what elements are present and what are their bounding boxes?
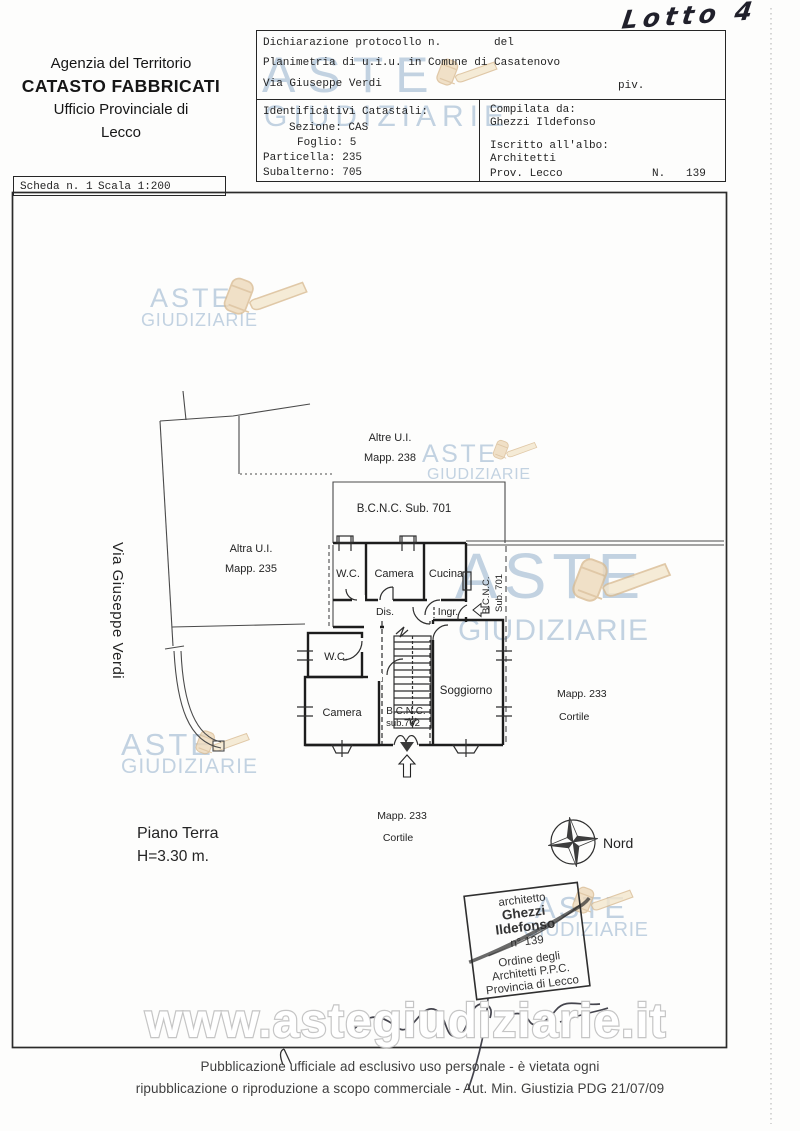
foglio-value: Foglio: 5 [297,137,356,149]
particella-value: Particella: 235 [263,152,362,164]
street-line: Via Giuseppe Verdi [263,78,382,90]
room-label-wc-top: W.C. [336,568,360,580]
label-cortile-right: Cortile [559,711,590,723]
watermark-word2: GIUDIZIARIE [427,466,531,483]
agency-header: Agenzia del Territorio CATASTO FABBRICAT… [16,52,226,144]
room-label-ingr: Ingr. [438,606,458,618]
room-label-wc-lower: W.C. [324,651,348,663]
label-bcnc-702: B.C.N.C. [386,706,425,717]
north-label: Nord [603,835,633,851]
label-bcnc-sub701: B.C.N.C. Sub. 701 [357,503,452,515]
label-floor-height: H=3.30 m. [137,848,209,865]
subalterno-value: Subalterno: 705 [263,167,362,179]
office-city: Lecco [16,121,226,144]
protocol-label: Dichiarazione protocollo n. [263,37,441,49]
office-line: Ufficio Provinciale di [16,98,226,121]
label-mapp-235: Mapp. 235 [225,563,277,575]
watermark-aste-left-upper: ASTE GIUDIZIARIE [141,276,307,330]
scanned-cadastral-document: ASTE GIUDIZIARIE ASTE GIUDIZIARIE ASTE G… [0,0,800,1131]
albo-label: Iscritto all'albo: [490,140,609,152]
num-value: 139 [686,168,706,180]
room-label-camera-lower: Camera [322,707,362,719]
planimetria-line: Planimetria di u.i.u. in Comune di Casat… [263,57,560,69]
compilata-name: Ghezzi Ildefonso [490,117,596,129]
label-altre-ui: Altre U.I. [369,432,412,444]
watermark-word1: ASTE [150,283,233,313]
entrance-arrow [399,755,415,777]
watermark-aste-plan-upper: ASTE GIUDIZIARIE [422,439,537,483]
del-label: del [494,37,514,49]
num-label: N. [652,168,665,180]
label-mapp-233-bottom: Mapp. 233 [377,810,427,822]
scheda-number: Scheda n. 1 [20,181,93,193]
table-row-divider [256,99,726,100]
table-col-divider [479,99,480,182]
room-label-camera-top: Camera [374,568,414,580]
gavel-icon [492,439,537,460]
piv-label: piv. [618,80,644,92]
compilata-label: Compilata da: [490,104,576,116]
room-label-cucina: Cucina [429,568,464,580]
gavel-icon [222,276,306,316]
label-piano-terra: Piano Terra [137,825,219,842]
room-label-dis: Dis. [376,606,394,618]
prov-label: Prov. Lecco [490,168,563,180]
label-altra-ui: Altra U.I. [230,543,273,555]
label-cortile-bottom: Cortile [383,832,414,844]
room-label-soggiorno: Soggiorno [440,685,492,697]
albo-value: Architetti [490,153,556,165]
agency-name: Agenzia del Territorio [16,52,226,75]
watermark-aste-left-lower: ASTE GIUDIZIARIE [121,727,258,778]
scale-label: Scala 1:200 [98,181,171,193]
street-name-vertical: Via Giuseppe Verdi [109,542,126,679]
identificativi-title: Identificativi Catastali: [263,106,428,118]
footer-disclaimer-line2: ripubblicazione o riproduzione a scopo c… [0,1081,800,1096]
watermark-word2: GIUDIZIARIE [121,755,258,778]
label-bcnc-vertical: B.C.N.C. [481,577,492,614]
sezione-value: Sezione: CAS [289,122,368,134]
label-mapp-238: Mapp. 238 [364,452,416,464]
catasto-title: CATASTO FABBRICATI [16,75,226,98]
label-mapp-233-right: Mapp. 233 [557,688,607,700]
watermark-word1: ASTE [422,440,497,468]
url-watermark: www.astegiudiziarie.it [144,995,667,1048]
label-sub701-vertical: Sub. 701 [494,574,505,612]
plan-labels: Altre U.I. Mapp. 238 B.C.N.C. Sub. 701 A… [109,432,607,865]
compass-rose [545,814,601,870]
footer-disclaimer-line1: Pubblicazione ufficiale ad esclusivo uso… [0,1059,800,1074]
label-sub-702: sub.702 [386,718,420,729]
